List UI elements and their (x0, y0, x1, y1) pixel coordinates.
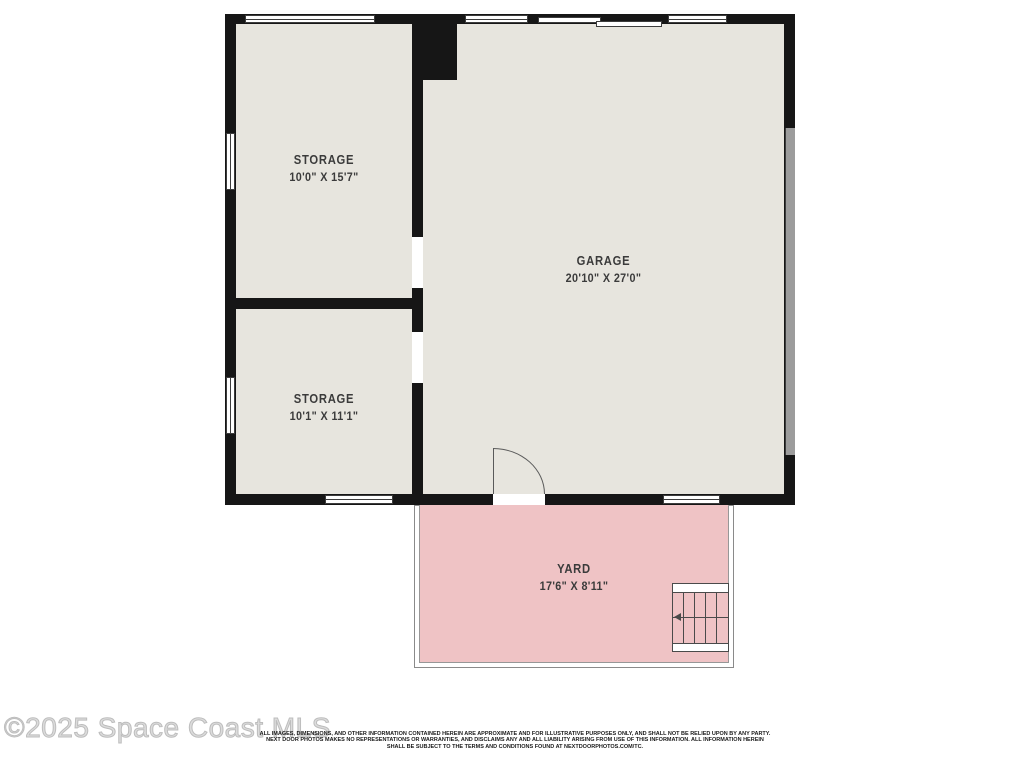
stairs-direction-line (673, 617, 728, 618)
floorplan-canvas: STORAGE 10'0" X 15'7" STORAGE 10'1" X 11… (0, 0, 1024, 768)
stairs-step-line (716, 593, 717, 643)
room-label-storage-upper: STORAGE 10'0" X 15'7" (245, 146, 403, 190)
room-label-yard: YARD 17'6" X 8'11" (435, 555, 714, 599)
stairs-step-line (694, 593, 695, 643)
window-bottom-garage (663, 495, 720, 504)
garage-door (785, 128, 795, 455)
exterior-door-opening (493, 494, 545, 505)
disclaimer-line-2: NEXT DOOR PHOTOS MAKES NO REPRESENTATION… (252, 737, 778, 743)
window-bottom-storage (325, 495, 393, 504)
window-left-storage-upper (226, 133, 235, 190)
room-name: GARAGE (577, 254, 631, 268)
room-name: YARD (557, 562, 591, 576)
room-label-storage-lower: STORAGE 10'1" X 11'1" (245, 385, 403, 429)
window-left-storage-lower (226, 377, 235, 434)
window-top-garage-left (465, 15, 528, 23)
stairs-step-line (705, 593, 706, 643)
disclaimer: ALL IMAGES, DIMENSIONS, AND OTHER INFORM… (252, 731, 778, 750)
stairs-step-line (683, 593, 684, 643)
room-label-garage: GARAGE 20'10" X 27'0" (441, 247, 766, 291)
room-dimensions: 20'10" X 27'0" (566, 271, 642, 285)
window-top-storage (245, 15, 375, 23)
doorway-opening-upper (412, 237, 423, 288)
room-dimensions: 10'0" X 15'7" (289, 170, 358, 184)
wall-block (412, 24, 457, 80)
room-dimensions: 10'1" X 11'1" (290, 409, 359, 423)
room-name: STORAGE (294, 153, 354, 167)
window-top-garage-right (668, 15, 727, 23)
doorway-opening-lower (412, 332, 423, 383)
room-dimensions: 17'6" X 8'11" (540, 579, 609, 593)
stairs-arrow-icon (674, 613, 681, 621)
disclaimer-line-3: SHALL BE SUBJECT TO THE TERMS AND CONDIT… (252, 744, 778, 750)
sliding-door-panel-right (596, 21, 662, 27)
sliding-door-panel-left (538, 17, 601, 23)
stairs-landing-bottom (673, 643, 728, 651)
room-name: STORAGE (294, 392, 354, 406)
